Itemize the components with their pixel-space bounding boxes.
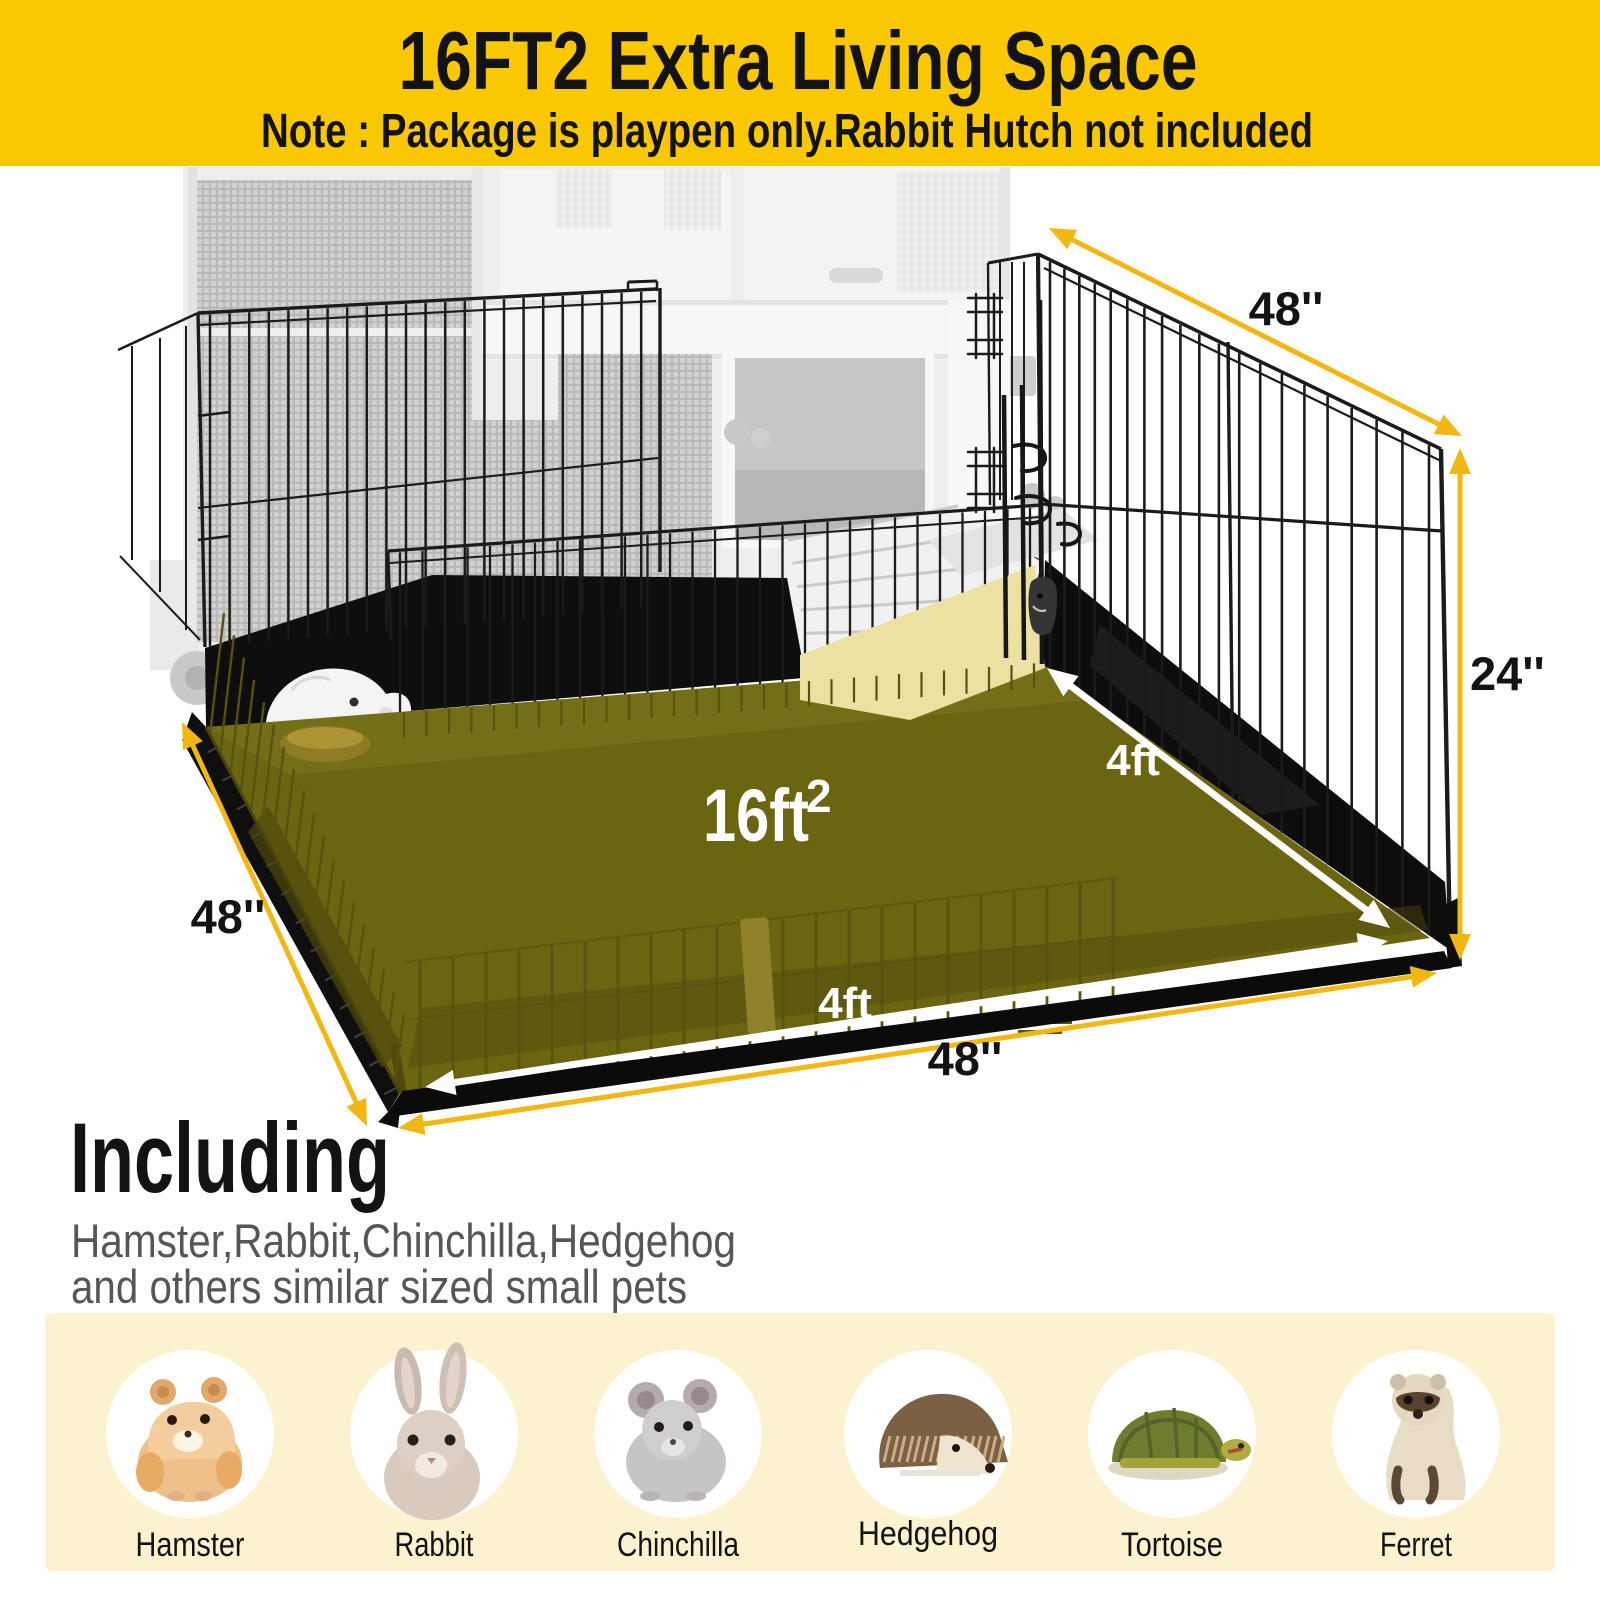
svg-text:Tortoise: Tortoise — [1121, 1526, 1223, 1564]
svg-text:Rabbit: Rabbit — [395, 1526, 474, 1564]
svg-text:Chinchilla: Chinchilla — [617, 1526, 739, 1564]
svg-text:48ʹʹ: 48ʹʹ — [928, 1032, 1003, 1085]
svg-text:and others similar sized small: and others similar sized small pets — [71, 1260, 687, 1313]
svg-text:16FT2 Extra Living Space: 16FT2 Extra Living Space — [399, 14, 1198, 107]
svg-text:4ft: 4ft — [1106, 736, 1160, 785]
svg-text:Hedgehog: Hedgehog — [858, 1515, 998, 1553]
svg-text:Including: Including — [70, 1102, 390, 1213]
svg-text:24ʹʹ: 24ʹʹ — [1470, 647, 1545, 700]
svg-text:48ʹʹ: 48ʹʹ — [191, 890, 266, 943]
svg-text:Ferret: Ferret — [1380, 1526, 1452, 1564]
svg-text:Hamster: Hamster — [136, 1526, 245, 1564]
svg-text:4ft: 4ft — [818, 979, 872, 1028]
svg-text:48ʹʹ: 48ʹʹ — [1249, 282, 1324, 335]
svg-text:2: 2 — [806, 770, 832, 822]
svg-text:Note : Package is playpen only: Note : Package is playpen only.Rabbit Hu… — [261, 105, 1313, 158]
svg-text:16ft: 16ft — [703, 774, 809, 857]
